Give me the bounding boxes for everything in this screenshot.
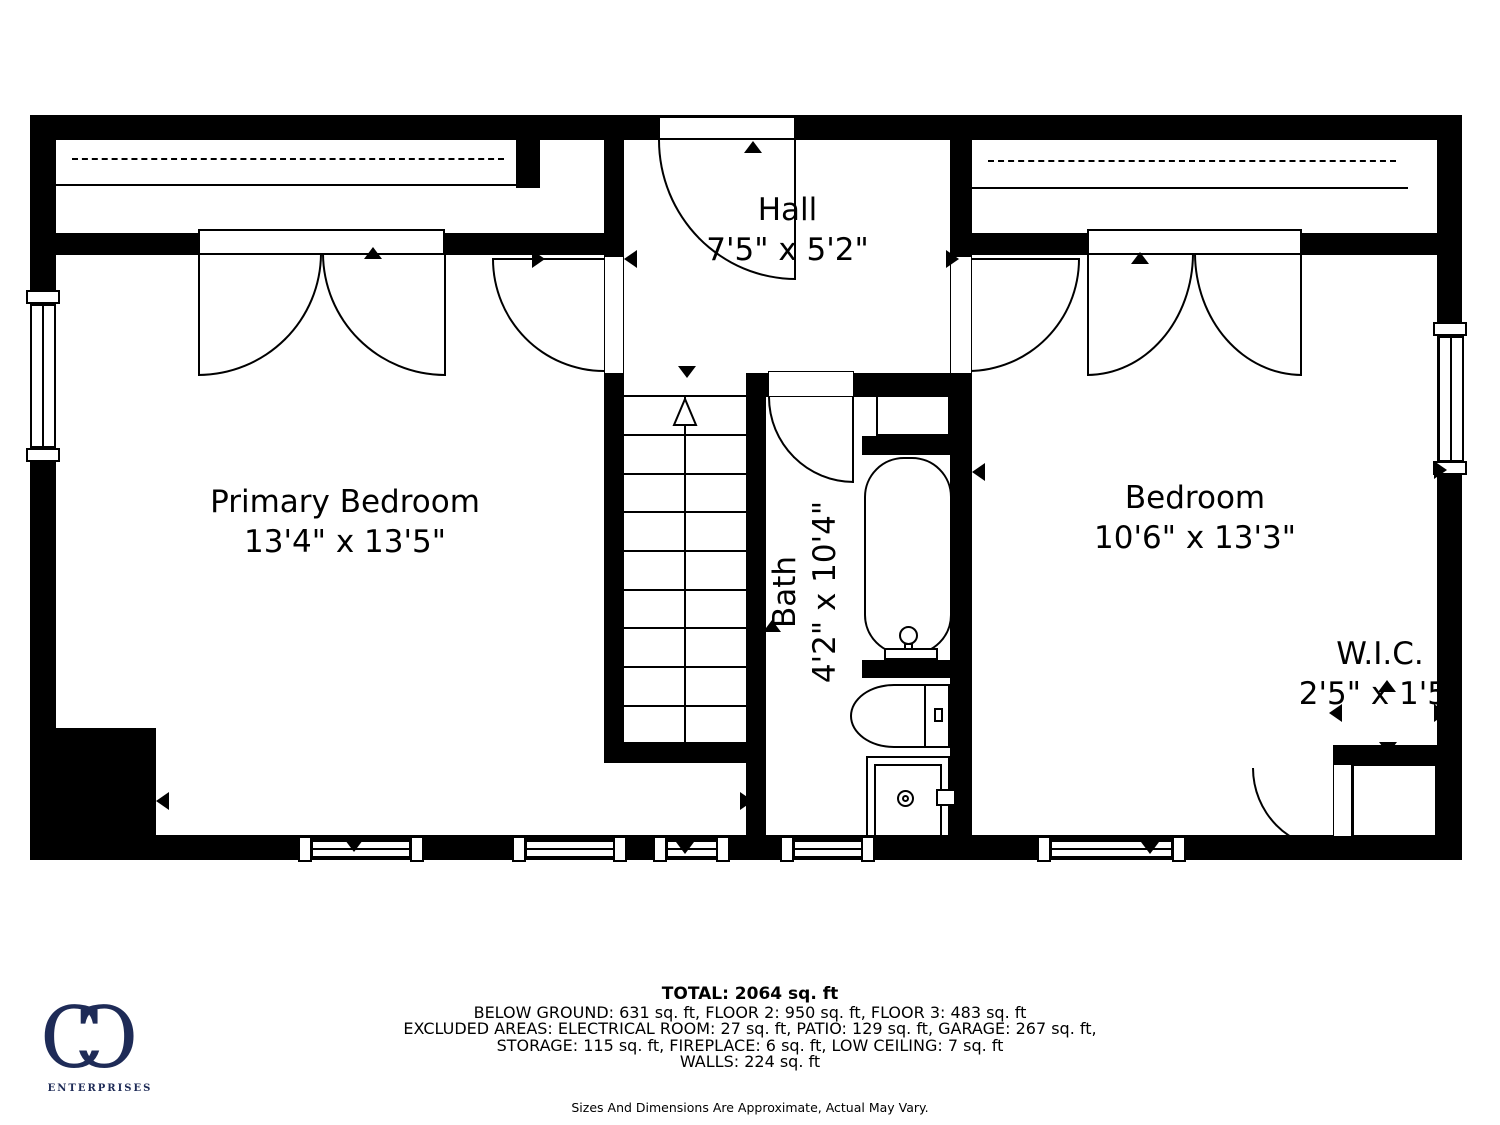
wic-interior — [1352, 764, 1437, 837]
dimension-arrow — [364, 247, 382, 259]
fireplace-mass — [30, 728, 156, 860]
dimension-arrow — [740, 792, 753, 810]
hall-label: Hall 7'5" x 5'2" — [650, 190, 925, 270]
dimension-arrow — [624, 250, 637, 268]
logo-monogram-icon: C C — [38, 995, 162, 1081]
window-cap — [1433, 322, 1467, 336]
room-dimensions: 13'4" x 13'5" — [135, 522, 555, 562]
dimension-arrow — [532, 250, 545, 268]
stairs — [624, 395, 746, 743]
logo: C C ENTERPRISES — [38, 995, 162, 1094]
dimension-arrow — [972, 463, 985, 481]
primary-doorway — [604, 256, 624, 374]
window-cap — [1172, 836, 1186, 862]
dimension-arrow — [1434, 461, 1447, 479]
stair-center-line — [684, 395, 686, 742]
room-name: Hall — [650, 190, 925, 230]
bath-divider-wall — [862, 660, 950, 678]
dimension-arrow — [1434, 704, 1447, 722]
dimension-arrow — [678, 366, 696, 378]
closet-shelf-left — [56, 184, 516, 186]
room-name: Bath — [765, 427, 805, 757]
dimension-arrow — [676, 842, 694, 854]
room-name: Bedroom — [990, 478, 1400, 518]
wall-bath-left — [746, 373, 766, 860]
wic-doorway — [1333, 764, 1352, 837]
stairs-up-arrow-icon — [669, 396, 701, 428]
window-cap — [653, 836, 667, 862]
toilet-bowl — [850, 684, 930, 748]
total-area: TOTAL: 2064 sq. ft — [300, 986, 1200, 1003]
dimension-arrow — [1141, 842, 1159, 854]
wall-closet-stub — [516, 140, 540, 188]
window-pane-line — [42, 304, 44, 448]
window-pane-line — [793, 848, 863, 850]
wic-label: W.I.C. 2'5" x 1'5" — [1255, 634, 1500, 714]
disclaimer: Sizes And Dimensions Are Approximate, Ac… — [300, 1100, 1200, 1117]
walls-area: WALLS: 224 sq. ft — [300, 1054, 1200, 1071]
window-cap — [716, 836, 730, 862]
wall-stair-bottom — [604, 742, 766, 763]
dimension-arrow — [345, 840, 363, 852]
room-dimensions: 10'6" x 13'3" — [990, 518, 1400, 558]
closet-rod-left — [72, 158, 504, 160]
window-cap — [780, 836, 794, 862]
bath-label: Bath 4'2" x 10'4" — [765, 427, 845, 757]
room-name: Primary Bedroom — [135, 482, 555, 522]
sink-faucet-icon — [936, 789, 956, 806]
bedroom-closet-doorway — [1087, 229, 1302, 255]
room-name: W.I.C. — [1255, 634, 1500, 674]
dimension-arrow — [1379, 742, 1397, 754]
closet-rod-right — [988, 160, 1396, 162]
bath-shelf-wall — [862, 436, 950, 455]
window-cap — [298, 836, 312, 862]
bedroom-door-arc — [968, 259, 1080, 372]
room-dimensions: 7'5" x 5'2" — [650, 230, 925, 270]
bedroom-doorway — [950, 256, 972, 374]
hall-entry-doorway — [658, 116, 796, 140]
window-cap — [861, 836, 875, 862]
room-dimensions: 4'2" x 10'4" — [805, 427, 845, 757]
wall-hall-bedroom — [950, 140, 972, 860]
bedroom-label: Bedroom 10'6" x 13'3" — [990, 478, 1400, 558]
french-door-arc — [1194, 253, 1302, 376]
bathtub-deck — [884, 648, 938, 660]
primary-bedroom-label: Primary Bedroom 13'4" x 13'5" — [135, 482, 555, 562]
floor-plan: Primary Bedroom 13'4" x 13'5" Hall 7'5" … — [0, 0, 1500, 1125]
wall-hall-primary — [604, 140, 624, 763]
toilet-flush-button — [934, 708, 943, 722]
primary-closet-doorway — [198, 229, 445, 255]
logo-c2: C — [74, 995, 138, 1081]
dimension-arrow — [744, 141, 762, 153]
dimension-arrow — [763, 620, 781, 632]
closet-shelf-right — [972, 187, 1408, 189]
window-pane-line — [525, 848, 615, 850]
sink-drain-dot — [902, 795, 909, 802]
window-pane-line — [1450, 336, 1452, 462]
window-cap — [1037, 836, 1051, 862]
window-cap — [613, 836, 627, 862]
window-cap — [26, 448, 60, 462]
bath-doorway — [768, 371, 854, 397]
dimension-arrow — [156, 792, 169, 810]
dimension-arrow — [946, 250, 959, 268]
dimension-arrow — [1378, 680, 1396, 692]
bath-shelf — [876, 393, 950, 436]
window-cap — [512, 836, 526, 862]
primary-door-arc — [492, 259, 604, 372]
area-summary: TOTAL: 2064 sq. ft BELOW GROUND: 631 sq.… — [300, 986, 1200, 1116]
french-door-arc — [322, 253, 445, 376]
dimension-arrow — [1131, 252, 1149, 264]
french-door-arc — [198, 253, 322, 376]
french-door-arc — [1087, 253, 1194, 376]
window-cap — [26, 290, 60, 304]
window-cap — [410, 836, 424, 862]
dimension-arrow — [1329, 704, 1342, 722]
